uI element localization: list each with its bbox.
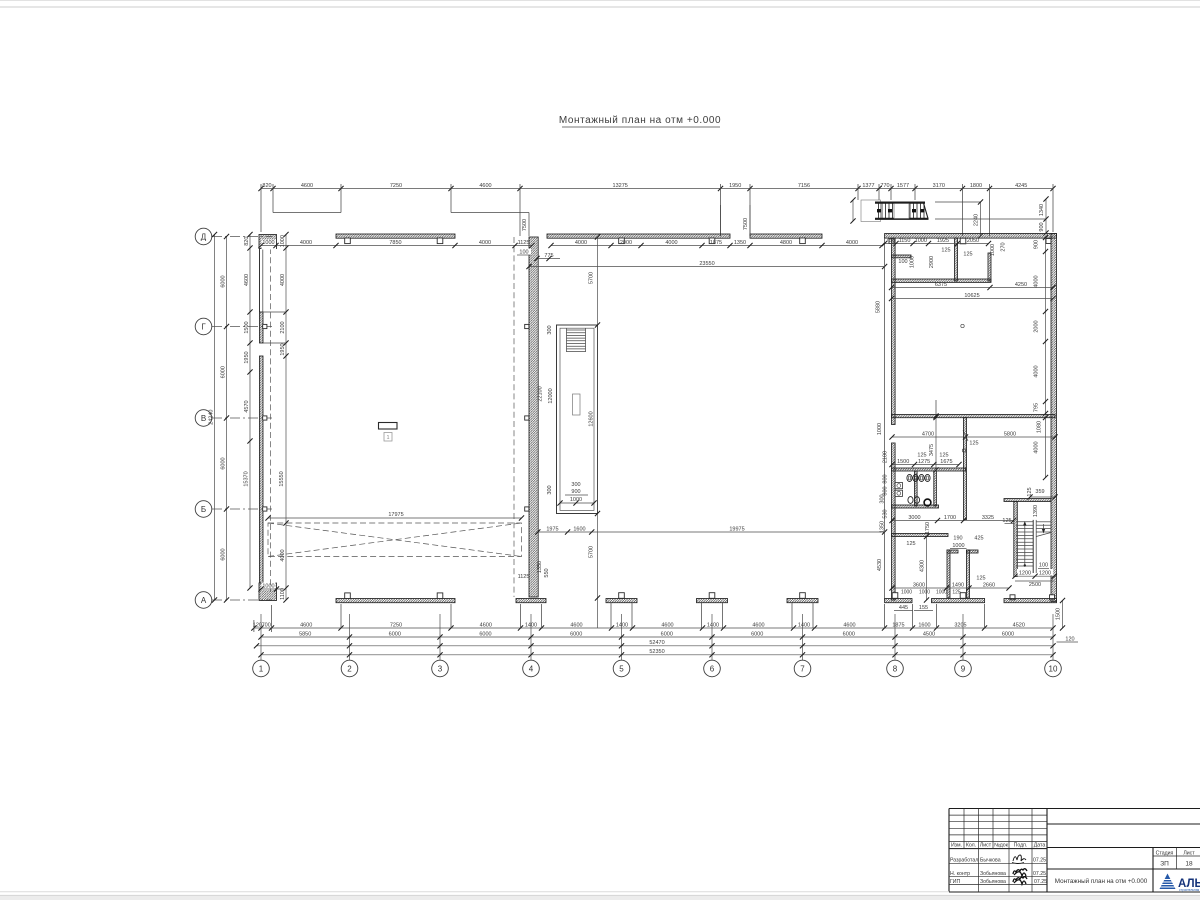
- svg-text:4000: 4000: [575, 240, 587, 246]
- svg-text:12000: 12000: [548, 388, 554, 403]
- svg-text:4245: 4245: [1015, 183, 1027, 189]
- svg-text:6000: 6000: [843, 631, 855, 637]
- svg-text:750: 750: [886, 238, 895, 244]
- svg-text:4600: 4600: [300, 622, 312, 628]
- svg-text:4250: 4250: [1015, 282, 1027, 288]
- svg-text:1950: 1950: [729, 183, 741, 189]
- svg-text:795: 795: [1034, 403, 1040, 412]
- svg-text:1000: 1000: [901, 590, 912, 596]
- svg-text:530: 530: [883, 509, 889, 518]
- svg-text:4600: 4600: [843, 622, 855, 628]
- svg-text:7500: 7500: [522, 219, 528, 231]
- svg-text:820: 820: [244, 237, 250, 246]
- svg-text:125: 125: [906, 541, 915, 547]
- svg-text:24240: 24240: [208, 410, 214, 425]
- svg-text:820: 820: [262, 183, 271, 189]
- svg-text:1800: 1800: [970, 183, 982, 189]
- svg-text:6000: 6000: [1002, 631, 1014, 637]
- svg-text:Дата: Дата: [1034, 843, 1046, 849]
- svg-text:4600: 4600: [752, 622, 764, 628]
- svg-text:1000: 1000: [262, 240, 274, 246]
- svg-text:800: 800: [883, 486, 889, 495]
- svg-text:445: 445: [899, 605, 908, 611]
- svg-text:23550: 23550: [699, 261, 714, 267]
- svg-text:07.25: 07.25: [1034, 879, 1047, 885]
- svg-text:1600: 1600: [918, 622, 930, 628]
- svg-text:Кол.: Кол.: [966, 843, 976, 849]
- svg-text:1377: 1377: [862, 183, 874, 189]
- svg-text:1975: 1975: [546, 526, 558, 532]
- svg-text:6000: 6000: [220, 366, 226, 378]
- svg-text:1950: 1950: [280, 343, 286, 355]
- svg-text:4800: 4800: [780, 240, 792, 246]
- svg-text:800: 800: [883, 474, 889, 483]
- svg-text:3000: 3000: [908, 515, 920, 521]
- svg-text:Подп.: Подп.: [1014, 843, 1028, 849]
- svg-text:1400: 1400: [798, 622, 810, 628]
- svg-text:2100: 2100: [883, 451, 889, 463]
- svg-text:1875: 1875: [892, 622, 904, 628]
- svg-text:07.25: 07.25: [1033, 871, 1046, 877]
- svg-text:6000: 6000: [570, 631, 582, 637]
- svg-text:13275: 13275: [613, 183, 628, 189]
- svg-text:4600: 4600: [301, 183, 313, 189]
- svg-text:19975: 19975: [729, 526, 744, 532]
- svg-text:6000: 6000: [220, 548, 226, 560]
- svg-text:7850: 7850: [389, 240, 401, 246]
- svg-text:1350: 1350: [734, 240, 746, 246]
- svg-text:1350: 1350: [880, 521, 886, 533]
- svg-text:Монтажный план на отм +0.000: Монтажный план на отм +0.000: [1055, 877, 1148, 885]
- svg-text:Бычкова: Бычкова: [980, 858, 1001, 864]
- svg-text:700: 700: [262, 622, 271, 628]
- svg-text:4000: 4000: [1034, 275, 1040, 287]
- svg-text:Монтажный план на отм +0.000: Монтажный план на отм +0.000: [559, 115, 721, 126]
- svg-text:Зобьянова: Зобьянова: [980, 879, 1006, 885]
- svg-text:155: 155: [919, 605, 928, 611]
- svg-text:1200: 1200: [1019, 571, 1031, 577]
- svg-text:5880: 5880: [876, 301, 882, 313]
- svg-text:7250: 7250: [390, 183, 402, 189]
- svg-text:100: 100: [519, 250, 528, 256]
- svg-text:2240: 2240: [974, 214, 980, 226]
- svg-text:1400: 1400: [707, 622, 719, 628]
- svg-text:1600: 1600: [573, 526, 585, 532]
- svg-text:1390: 1390: [1033, 505, 1039, 517]
- svg-text:300: 300: [547, 325, 553, 334]
- svg-text:6000: 6000: [751, 631, 763, 637]
- svg-text:5850: 5850: [299, 631, 311, 637]
- svg-text:4600: 4600: [661, 622, 673, 628]
- svg-text:4000: 4000: [280, 274, 286, 286]
- svg-text:300: 300: [571, 482, 580, 488]
- svg-text:1350: 1350: [537, 561, 543, 573]
- svg-text:5700: 5700: [589, 546, 595, 558]
- svg-text:4000: 4000: [300, 240, 312, 246]
- svg-text:Б: Б: [201, 505, 206, 514]
- svg-text:7500: 7500: [743, 218, 749, 230]
- svg-text:4600: 4600: [570, 622, 582, 628]
- svg-text:12600: 12600: [589, 411, 595, 426]
- svg-text:2000: 2000: [620, 240, 632, 246]
- svg-text:Зобьянова: Зобьянова: [980, 871, 1006, 877]
- svg-text:770: 770: [880, 183, 889, 189]
- svg-text:120: 120: [1065, 637, 1074, 643]
- svg-text:425: 425: [974, 536, 983, 542]
- svg-text:2900: 2900: [929, 256, 935, 268]
- svg-text:550: 550: [544, 568, 550, 577]
- svg-text:4000: 4000: [280, 549, 286, 561]
- svg-text:1490: 1490: [952, 582, 964, 588]
- svg-text:7: 7: [800, 664, 805, 673]
- svg-text:4520: 4520: [1013, 622, 1025, 628]
- svg-text:125: 125: [969, 441, 978, 447]
- svg-text:1: 1: [259, 664, 264, 673]
- svg-text:4500: 4500: [923, 631, 935, 637]
- svg-text:190: 190: [953, 536, 962, 542]
- svg-text:1500: 1500: [1056, 608, 1062, 620]
- svg-text:4000: 4000: [1034, 365, 1040, 377]
- svg-text:125: 125: [1002, 518, 1011, 524]
- svg-text:52350: 52350: [649, 649, 664, 655]
- svg-text:4000: 4000: [1034, 441, 1040, 453]
- svg-text:1400: 1400: [525, 622, 537, 628]
- svg-text:3: 3: [438, 664, 443, 673]
- svg-text:Д: Д: [201, 232, 207, 241]
- svg-text:4: 4: [529, 664, 534, 673]
- svg-text:300: 300: [547, 485, 553, 494]
- svg-text:6000: 6000: [479, 631, 491, 637]
- svg-text:А: А: [201, 596, 207, 605]
- svg-text:6000: 6000: [220, 275, 226, 287]
- svg-text:15370: 15370: [244, 471, 250, 486]
- svg-text:1080: 1080: [1037, 421, 1043, 433]
- svg-text:5800: 5800: [1004, 431, 1016, 437]
- svg-text:100: 100: [898, 259, 907, 265]
- svg-text:9: 9: [961, 664, 966, 673]
- svg-text:5: 5: [619, 664, 624, 673]
- svg-text:1125: 1125: [518, 240, 530, 246]
- svg-text:3205: 3205: [954, 622, 966, 628]
- svg-text:10625: 10625: [964, 293, 979, 299]
- svg-text:125: 125: [952, 590, 961, 596]
- svg-text:1000: 1000: [952, 543, 964, 549]
- svg-text:3170: 3170: [933, 183, 945, 189]
- svg-text:1: 1: [386, 435, 389, 441]
- svg-text:900: 900: [1039, 222, 1045, 231]
- svg-text:1750: 1750: [925, 522, 931, 534]
- svg-text:7250: 7250: [390, 622, 402, 628]
- svg-text:3475: 3475: [929, 444, 935, 456]
- svg-text:900: 900: [1034, 240, 1040, 249]
- svg-text:1000: 1000: [915, 238, 927, 244]
- svg-text:1000: 1000: [990, 244, 996, 256]
- svg-text:Н. контр: Н. контр: [950, 871, 970, 877]
- svg-text:4600: 4600: [479, 183, 491, 189]
- svg-text:1340: 1340: [1039, 204, 1045, 216]
- svg-text:1125: 1125: [518, 574, 530, 580]
- svg-text:1000: 1000: [919, 590, 930, 596]
- svg-text:100: 100: [1039, 563, 1048, 569]
- svg-text:1200: 1200: [1039, 571, 1051, 577]
- svg-text:4300: 4300: [920, 560, 926, 572]
- svg-text:125: 125: [917, 453, 926, 459]
- svg-text:1000: 1000: [877, 423, 883, 435]
- svg-text:2660: 2660: [983, 582, 995, 588]
- svg-text:300: 300: [880, 494, 886, 503]
- svg-text:1875: 1875: [710, 240, 722, 246]
- svg-text:ГИП: ГИП: [950, 879, 961, 885]
- svg-text:6000: 6000: [389, 631, 401, 637]
- svg-text:4600: 4600: [480, 622, 492, 628]
- svg-text:52470: 52470: [649, 640, 664, 646]
- svg-text:1577: 1577: [897, 183, 909, 189]
- svg-text:1000: 1000: [570, 497, 582, 503]
- svg-text:1700: 1700: [944, 515, 956, 521]
- svg-text:Лист: Лист: [1183, 850, 1195, 856]
- svg-text:4000: 4000: [665, 240, 677, 246]
- svg-text:5700: 5700: [589, 272, 595, 284]
- svg-text:125: 125: [976, 576, 985, 582]
- svg-text:15550: 15550: [279, 471, 285, 486]
- svg-text:1275: 1275: [918, 459, 930, 465]
- svg-text:ЗП: ЗП: [1160, 861, 1169, 868]
- svg-text:2: 2: [347, 664, 352, 673]
- svg-text:17975: 17975: [388, 512, 403, 518]
- svg-text:6000: 6000: [220, 457, 226, 469]
- svg-text:1000: 1000: [910, 256, 916, 268]
- svg-text:4530: 4530: [877, 559, 883, 571]
- svg-text:2000: 2000: [1034, 320, 1040, 332]
- svg-text:4700: 4700: [922, 431, 934, 437]
- svg-text:6: 6: [710, 664, 715, 673]
- svg-text:В: В: [201, 414, 206, 423]
- svg-text:4570: 4570: [244, 400, 250, 412]
- svg-text:1500: 1500: [897, 459, 909, 465]
- svg-text:Лист: Лист: [980, 843, 992, 849]
- svg-text:2500: 2500: [1029, 582, 1041, 588]
- svg-text:1950: 1950: [244, 351, 250, 363]
- svg-text:Разработал: Разработал: [950, 858, 978, 864]
- svg-text:1500: 1500: [244, 321, 250, 333]
- svg-text:1150: 1150: [899, 238, 911, 244]
- svg-text:4600: 4600: [244, 274, 250, 286]
- svg-text:07.25: 07.25: [1033, 858, 1046, 864]
- svg-text:125: 125: [939, 453, 948, 459]
- svg-text:270: 270: [1001, 242, 1007, 251]
- svg-text:4000: 4000: [846, 240, 858, 246]
- svg-text:Г: Г: [201, 322, 206, 331]
- svg-text:900: 900: [571, 489, 580, 495]
- svg-text:2050: 2050: [967, 238, 979, 244]
- svg-text:1000: 1000: [936, 590, 947, 596]
- svg-text:2100: 2100: [280, 321, 286, 333]
- svg-text:№док: №док: [994, 843, 1008, 849]
- svg-text:1000: 1000: [262, 583, 274, 589]
- svg-text:125: 125: [941, 248, 950, 254]
- svg-text:8: 8: [893, 664, 898, 673]
- svg-text:4000: 4000: [479, 240, 491, 246]
- svg-text:1925: 1925: [937, 238, 949, 244]
- svg-text:1100: 1100: [280, 588, 286, 600]
- svg-text:18: 18: [1185, 861, 1193, 868]
- svg-text:10: 10: [1049, 664, 1058, 673]
- svg-text:6000: 6000: [661, 631, 673, 637]
- svg-text:6375: 6375: [935, 282, 947, 288]
- svg-text:строительная компания: строительная компания: [1179, 888, 1200, 892]
- svg-text:1675: 1675: [940, 459, 952, 465]
- svg-text:3325: 3325: [982, 515, 994, 521]
- svg-text:3600: 3600: [913, 582, 925, 588]
- svg-text:22100: 22100: [538, 386, 544, 401]
- svg-text:359: 359: [1035, 489, 1044, 495]
- svg-text:Изм.: Изм.: [951, 843, 962, 849]
- svg-text:1400: 1400: [616, 622, 628, 628]
- svg-text:Стадия: Стадия: [1156, 850, 1174, 856]
- svg-text:125: 125: [963, 252, 972, 258]
- svg-text:7156: 7156: [798, 183, 810, 189]
